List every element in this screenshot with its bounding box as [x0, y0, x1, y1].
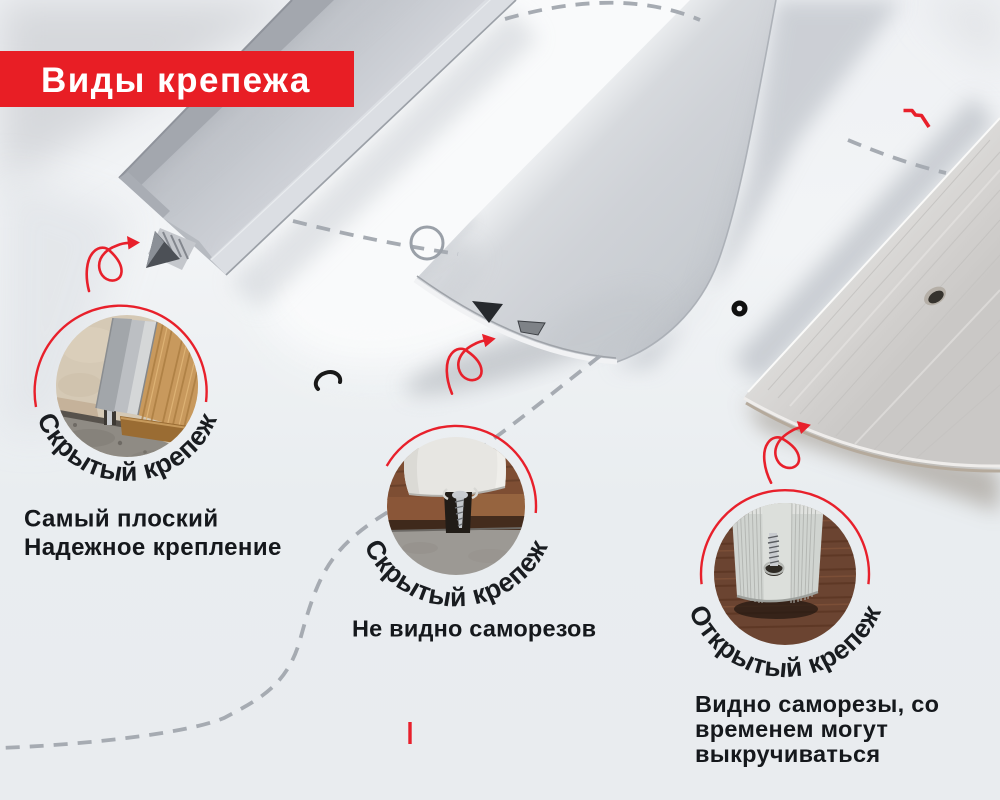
- svg-text:Надежное крепление: Надежное крепление: [24, 534, 282, 561]
- svg-text:Не видно саморезов: Не видно саморезов: [352, 616, 596, 642]
- svg-text:Самый плоский: Самый плоский: [24, 506, 218, 533]
- svg-text:выкручиваться: выкручиваться: [695, 741, 880, 767]
- svg-text:временем могут: временем могут: [695, 716, 888, 742]
- svg-text:Видно саморезы, со: Видно саморезы, со: [695, 691, 939, 717]
- svg-text:Виды крепежа: Виды крепежа: [41, 61, 311, 100]
